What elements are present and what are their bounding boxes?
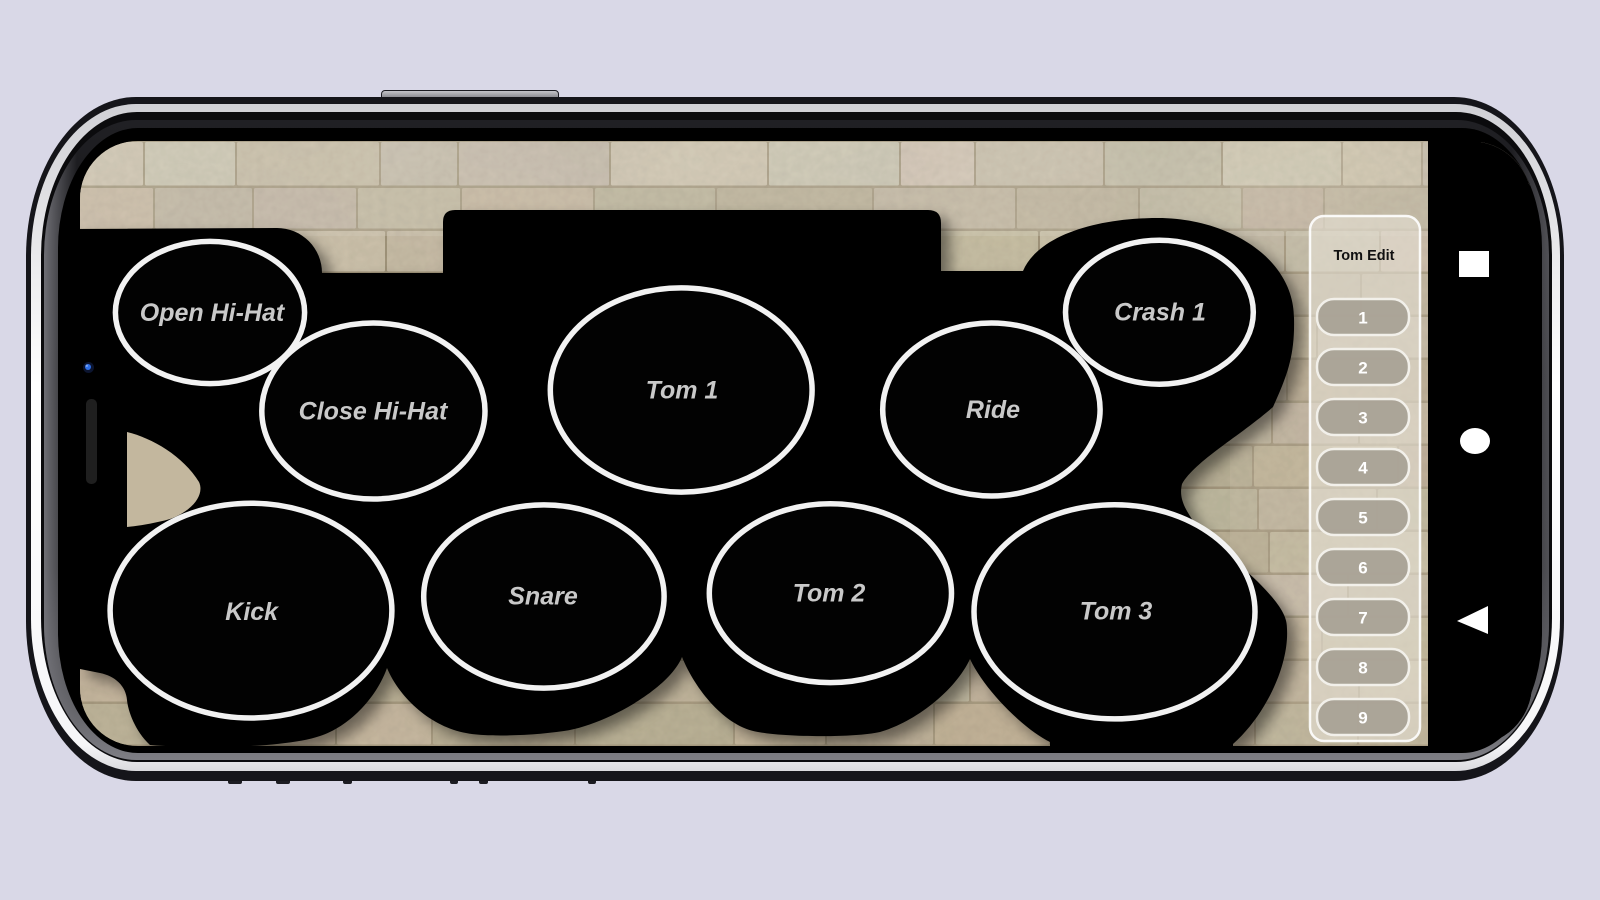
svg-text:2: 2 [1358,359,1367,378]
svg-text:Kick: Kick [225,598,279,626]
svg-text:Close Hi-Hat: Close Hi-Hat [299,398,449,426]
svg-text:7: 7 [1358,609,1367,628]
svg-text:4: 4 [1358,459,1368,478]
svg-text:Tom Edit: Tom Edit [1334,248,1395,264]
svg-text:Snare: Snare [508,583,578,611]
svg-text:5: 5 [1358,509,1367,528]
svg-text:9: 9 [1358,709,1367,728]
svg-text:6: 6 [1358,559,1367,578]
svg-text:Tom 2: Tom 2 [793,580,866,608]
svg-text:1: 1 [1358,309,1367,328]
svg-text:Tom 3: Tom 3 [1080,598,1153,626]
svg-text:Open Hi-Hat: Open Hi-Hat [140,299,286,327]
svg-text:Tom 1: Tom 1 [646,377,719,405]
svg-text:8: 8 [1358,659,1367,678]
svg-text:Crash 1: Crash 1 [1114,299,1206,327]
svg-text:3: 3 [1358,409,1367,428]
svg-text:Ride: Ride [966,396,1020,424]
